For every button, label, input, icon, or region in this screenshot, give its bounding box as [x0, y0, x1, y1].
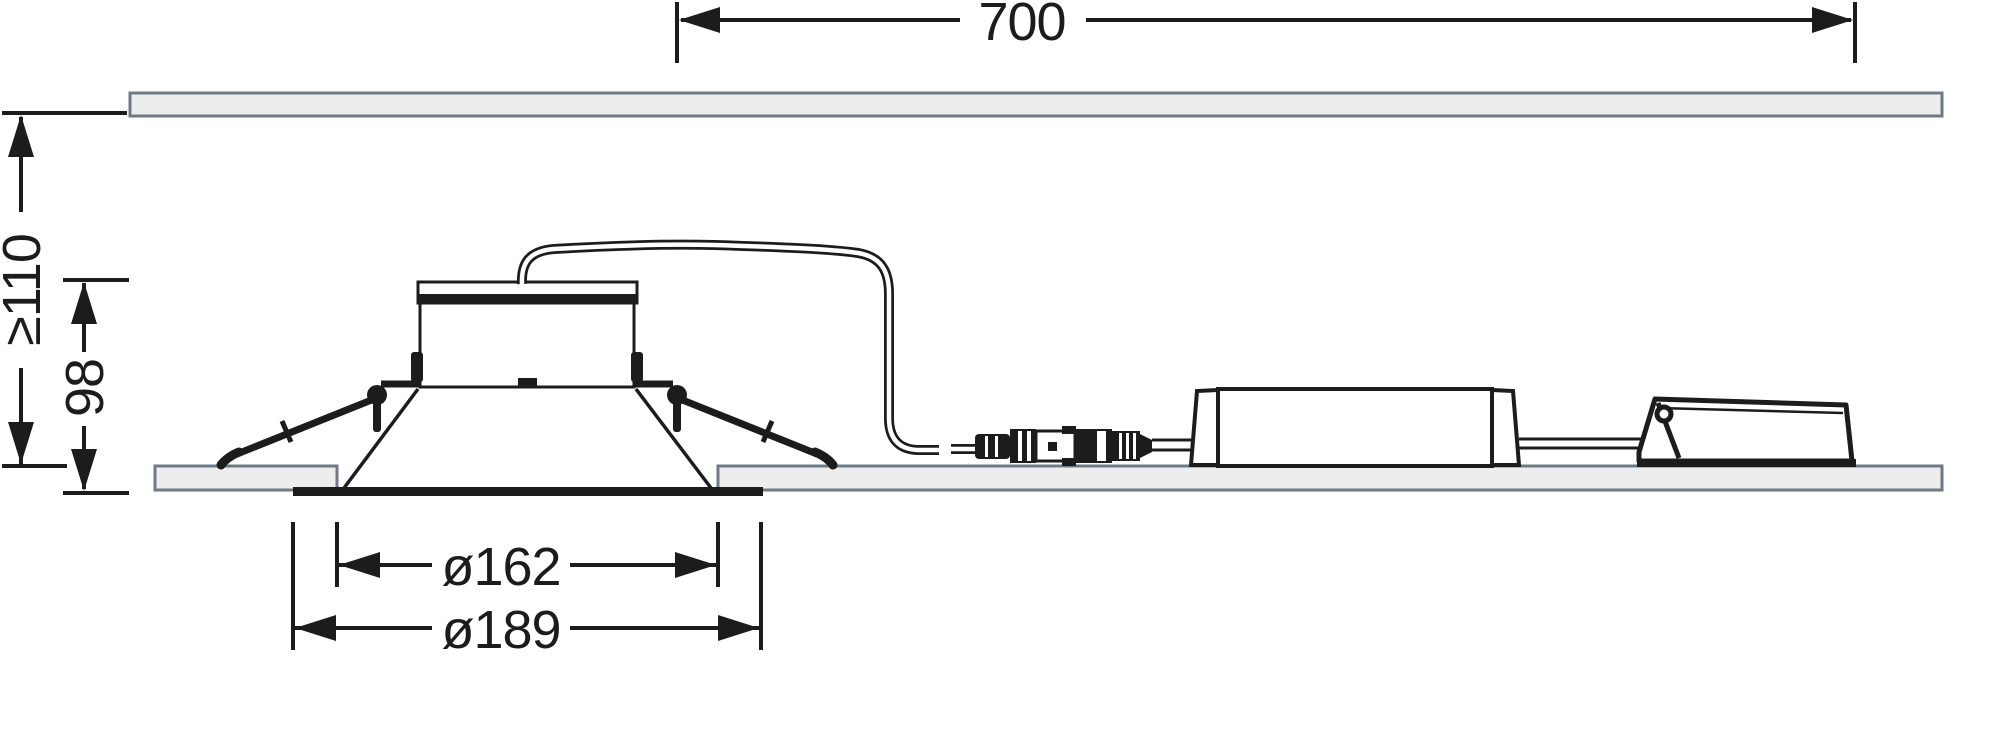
connector-rib-stripe [995, 436, 998, 457]
connector-rib-section [975, 434, 1010, 459]
connector-socket-body [1075, 429, 1112, 463]
connector-collar-stripe [1027, 431, 1031, 461]
driver-endcap-left [1191, 390, 1218, 465]
technical-drawing: 700 ≥110 98 [0, 0, 2000, 751]
junction-box-screw [1657, 407, 1671, 421]
connector-latch-bottom [1062, 458, 1076, 466]
connector-nut-stripe [1133, 433, 1136, 459]
junction-box-base [1637, 459, 1856, 467]
dim-label-189: ø189 [441, 600, 560, 660]
connector-collar-stripe [1018, 431, 1022, 461]
dim-label-162: ø162 [441, 537, 560, 597]
clip-bracket [411, 352, 423, 382]
led-driver [1191, 389, 1519, 466]
connector-latch-top [1062, 426, 1076, 434]
junction-box [1637, 399, 1856, 467]
dim-label-98: 98 [55, 359, 115, 417]
connector-nut-stripe [1119, 433, 1122, 459]
driver-endcap-right [1492, 390, 1519, 465]
clip-pin [673, 401, 681, 432]
ceiling-panel-bottom-right [718, 466, 1942, 490]
connector-nut-stripe [1126, 433, 1129, 459]
trim-bezel [293, 487, 763, 496]
clip-pin [373, 401, 381, 432]
dim-label-110: ≥110 [0, 234, 52, 346]
ceiling-panel-bottom-left [155, 466, 337, 490]
connector-collar [1010, 429, 1036, 463]
driver-body [1218, 389, 1492, 466]
connector-socket-stripe [1097, 431, 1106, 461]
fixture-body-tab [518, 378, 537, 387]
ceiling-panel-top [130, 93, 1942, 116]
connector-plug-dot [1048, 442, 1057, 451]
fixture-body [420, 303, 634, 387]
clip-bracket [631, 352, 643, 382]
dim-label-700: 700 [978, 0, 1065, 52]
connector-rib-stripe [985, 436, 988, 457]
